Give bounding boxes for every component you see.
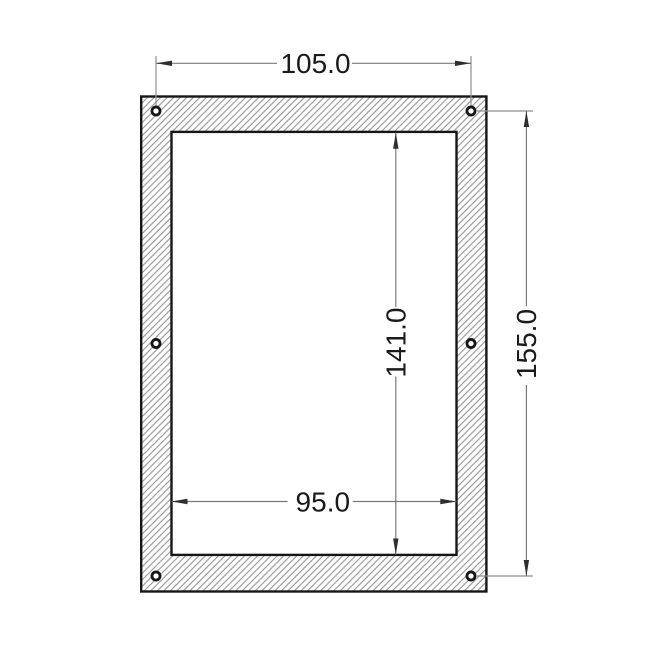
svg-text:141.0: 141.0: [381, 308, 412, 378]
svg-text:155.0: 155.0: [511, 309, 542, 379]
svg-text:105.0: 105.0: [280, 48, 350, 79]
svg-text:95.0: 95.0: [296, 486, 351, 517]
